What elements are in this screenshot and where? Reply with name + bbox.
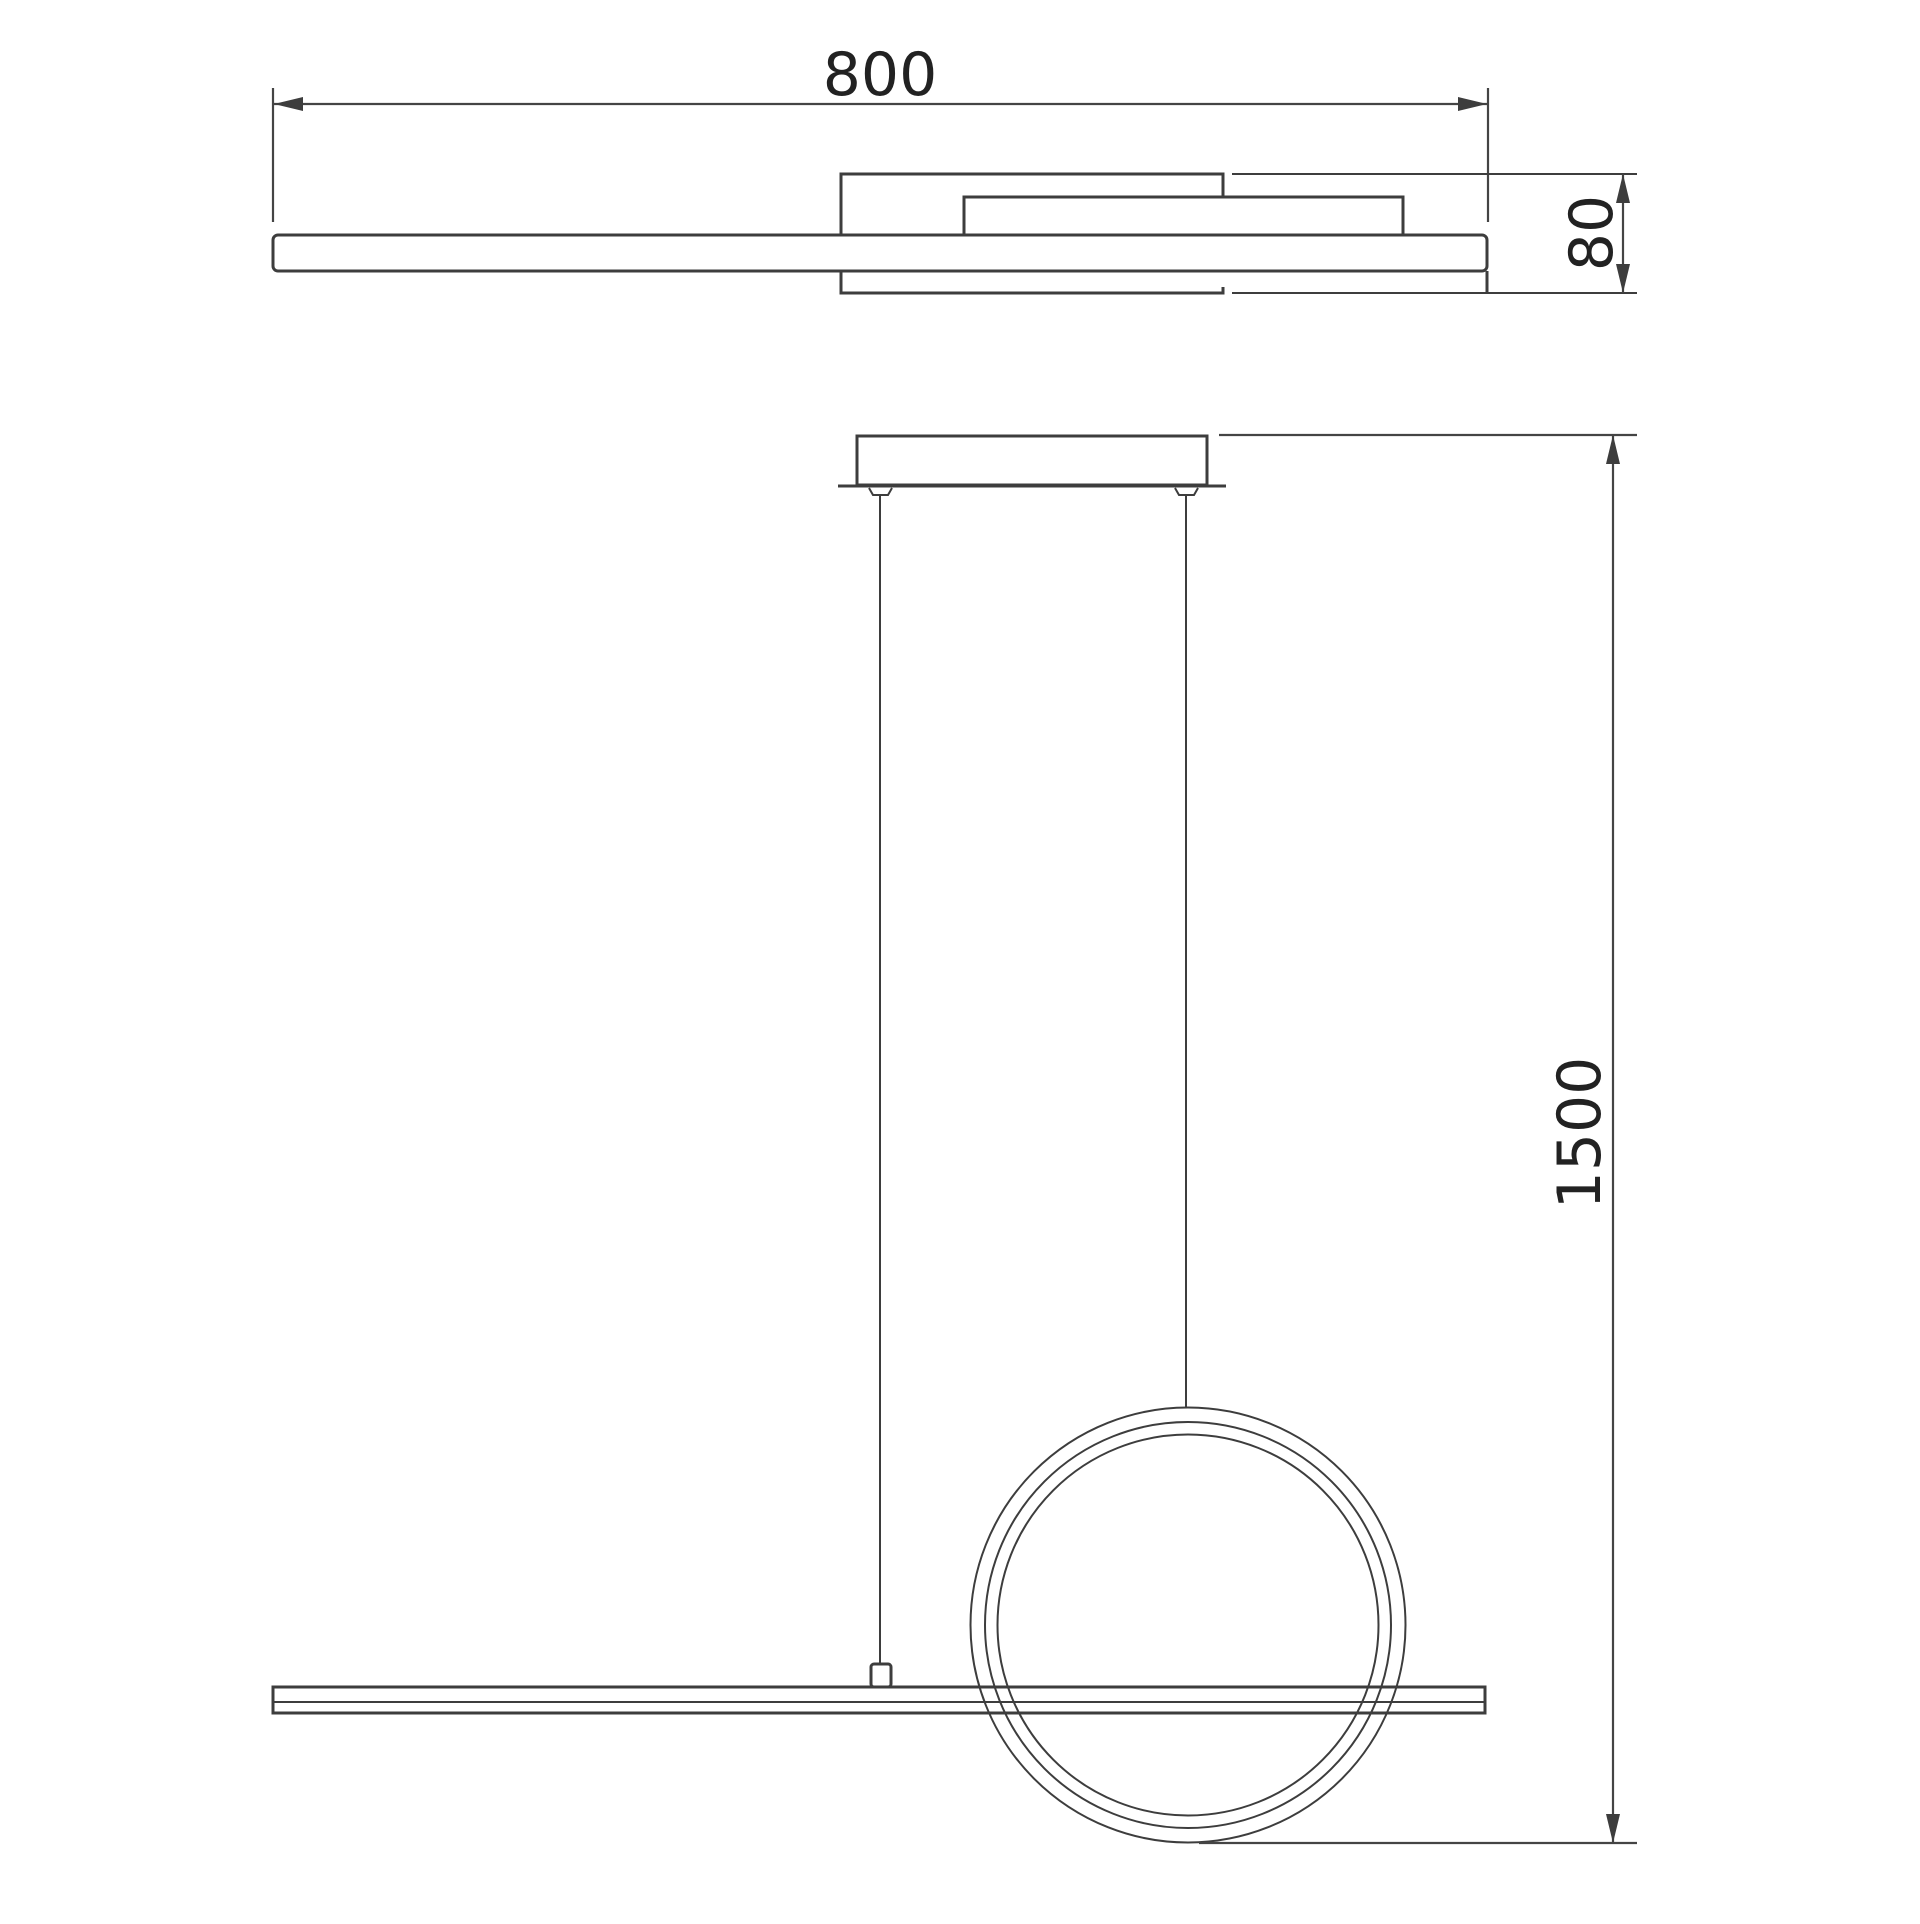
dimension-800-label: 800	[823, 40, 938, 110]
led-ring-middle-circle	[985, 1422, 1391, 1828]
wire-gripper	[871, 1664, 891, 1687]
dimension-800-arrow-right	[1458, 97, 1487, 111]
drawing-sheet: 800 80	[0, 0, 1920, 1920]
dimension-1500-arrow-top	[1606, 435, 1620, 464]
wire-fitting-left	[869, 488, 892, 495]
canopy-box-top-view-left	[841, 174, 1223, 235]
dimension-1500-arrow-bottom	[1606, 1814, 1620, 1843]
wire-fitting-right	[1175, 488, 1198, 495]
dimension-80-label: 80	[1557, 195, 1627, 271]
lower-plate-top-view-left	[841, 271, 1223, 293]
dimension-800-arrow-left	[274, 97, 303, 111]
light-bar-top-view	[273, 235, 1487, 271]
dimension-800: 800	[273, 40, 1488, 222]
front-view: 1500	[273, 435, 1637, 1843]
driver-box-top-view	[964, 197, 1403, 235]
top-view: 800 80	[273, 40, 1637, 293]
led-ring-inner-circle	[998, 1435, 1379, 1816]
led-ring	[971, 1408, 1406, 1843]
light-bar-front-view	[273, 1687, 1485, 1713]
dimension-1500: 1500	[1199, 435, 1637, 1843]
dimension-80: 80	[1557, 174, 1630, 293]
ceiling-canopy	[857, 436, 1207, 485]
led-ring-outer-circle	[971, 1408, 1406, 1843]
technical-drawing: 800 80	[0, 0, 1920, 1920]
dimension-1500-label: 1500	[1545, 1057, 1615, 1210]
